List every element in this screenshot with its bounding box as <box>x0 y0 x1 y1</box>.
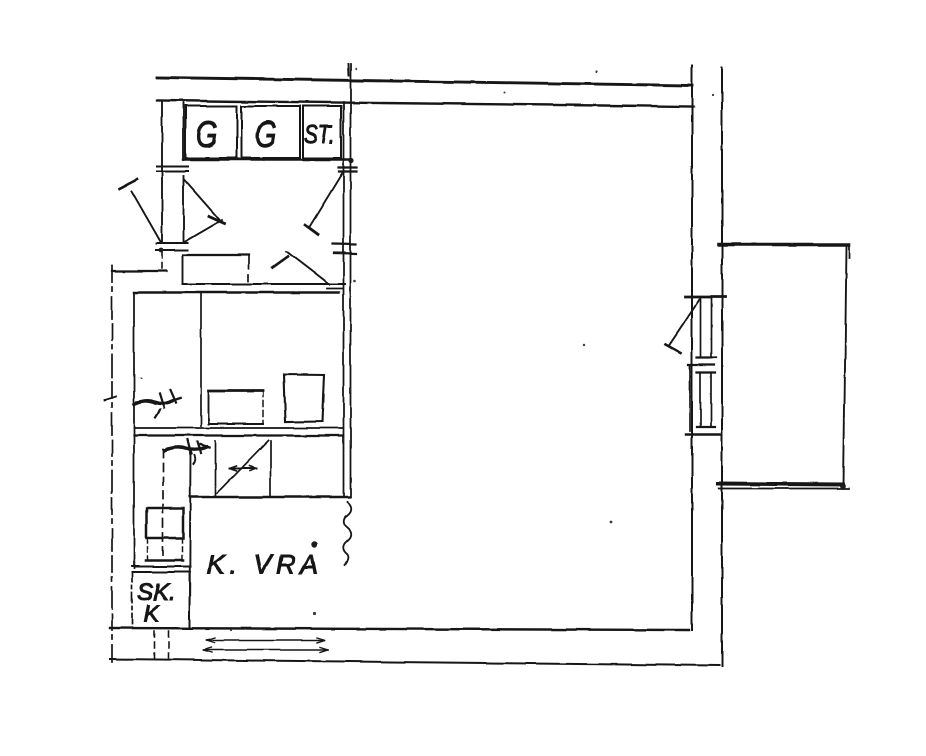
svg-text:G: G <box>196 114 217 155</box>
svg-text:K. VRA: K. VRA <box>207 550 323 580</box>
svg-text:ST.: ST. <box>304 120 335 150</box>
svg-text:K: K <box>143 601 160 628</box>
svg-text:G: G <box>255 114 276 155</box>
